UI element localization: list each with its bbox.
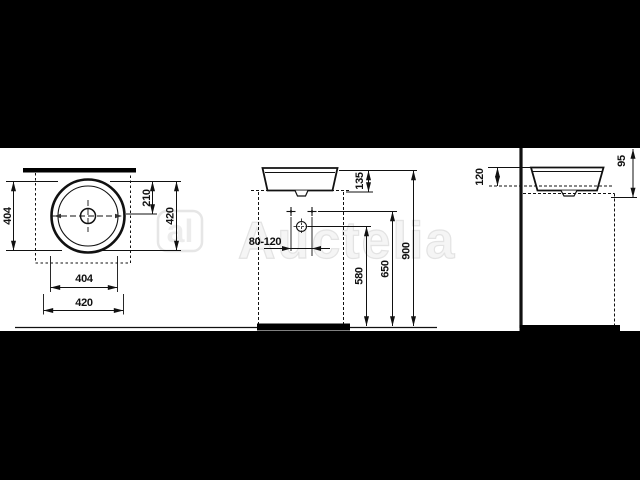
dim-label-120: 120 bbox=[474, 168, 486, 186]
dim-label-404-bottom: 404 bbox=[75, 273, 94, 285]
letterbox-top bbox=[0, 0, 640, 148]
dim-label-210: 210 bbox=[141, 189, 153, 207]
floor-bar-front bbox=[257, 324, 350, 331]
video-frame: al Auctelia 404 210 420 404 420 bbox=[0, 0, 640, 480]
dim-label-404-left: 404 bbox=[2, 206, 14, 225]
drain-outlet-front bbox=[295, 191, 308, 197]
dim-label-420-bottom: 420 bbox=[75, 297, 93, 309]
dim-label-420-right: 420 bbox=[164, 207, 176, 225]
technical-drawing-canvas: al Auctelia 404 210 420 404 420 bbox=[0, 0, 640, 480]
basin-front-outline bbox=[263, 168, 338, 191]
dim-label-580: 580 bbox=[353, 267, 365, 285]
counter-back-edge bbox=[23, 168, 136, 173]
basin-side-outline bbox=[531, 168, 604, 191]
dim-label-900: 900 bbox=[400, 242, 412, 260]
floor-bar-side bbox=[520, 325, 621, 332]
dim-label-95: 95 bbox=[616, 155, 628, 167]
dim-label-650: 650 bbox=[379, 260, 391, 278]
dim-label-80-120: 80-120 bbox=[249, 236, 282, 248]
dim-label-135: 135 bbox=[354, 172, 366, 190]
letterbox-bottom bbox=[0, 331, 640, 480]
